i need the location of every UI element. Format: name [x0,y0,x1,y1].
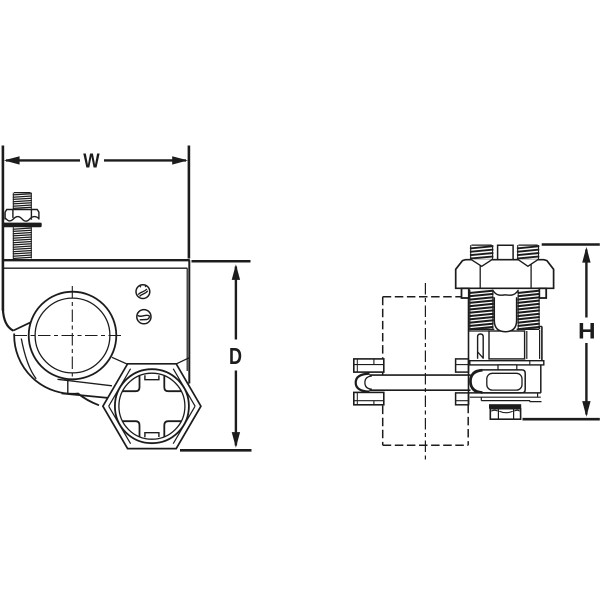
svg-text:H: H [578,318,596,343]
svg-text:W: W [83,150,100,172]
svg-text:D: D [229,343,242,369]
